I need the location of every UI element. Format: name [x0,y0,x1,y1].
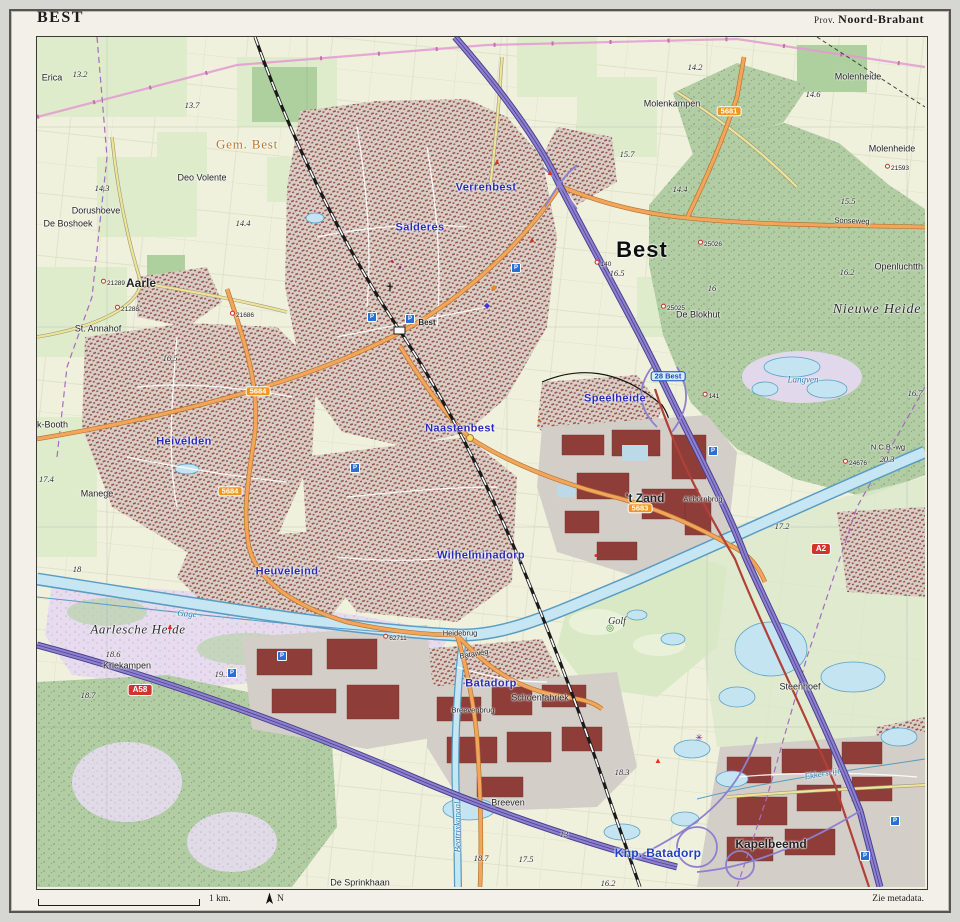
map-label-sonseweg: Sonseweg [834,217,869,226]
map-label-best: Best [616,239,668,261]
map-label-14-6: 14.6 [806,90,821,99]
map-label-21686: 21686 [230,311,254,320]
map-footer: 1 km. N Zie metadata. [37,890,924,912]
parking-icon: P [708,446,718,456]
map-label-18-3: 18.3 [615,768,630,777]
province-label: Prov. Noord-Brabant [814,12,924,27]
monument-icon: ◆ [491,284,497,292]
map-label-14-4: 14.4 [673,185,688,194]
map-label-langven: Langven [788,376,819,385]
map-label-salderes: Salderes [395,223,444,234]
hospital-icon: ● [594,553,598,560]
map-label-kapelbeemd: Kapelbeemd [735,838,806,850]
map-label-16-5: 16.5 [610,269,625,278]
poi-icon: ◆ [484,302,490,310]
map-label-18-6: 18.6 [106,650,121,659]
map-label-gage: Gage [177,609,197,619]
province-name: Noord-Brabant [838,12,924,26]
map-label-16-5: 16.5 [163,354,178,363]
map-label-25026: 25026 [698,240,722,249]
parking-icon: P [860,851,870,861]
map-label-21289: 21289 [101,279,125,288]
golf-icon: ◎ [606,624,614,633]
map-label-manege: Manege [81,490,114,499]
map-label-speelheide: Speelheide [584,394,646,405]
parking-icon: P [890,816,900,826]
sheet-title: BEST [37,9,84,27]
map-label-18: 18 [73,565,82,574]
map-label-16-2: 16.2 [840,268,855,277]
campsite-icon: ▲ [493,158,501,166]
map-label-140: 140 [595,260,612,269]
church-icon: ✝ [385,284,394,295]
map-label-25025: 25025 [661,304,685,313]
map-label-naastenbest: Naastenbest [425,424,495,435]
metadata-note: Zie metadata. [872,894,924,904]
map-label-17-2: 17.2 [775,522,790,531]
map-label-nieuwe-heide: Nieuwe Heide [833,303,922,317]
map-label-17-5: 17.5 [519,855,534,864]
map-label-beatrixkanaal: Beatrixkanaal [454,802,463,853]
map-label-k-booth: k-Booth [37,421,68,430]
map-artwork [37,37,925,887]
map-label-best: Best [418,319,435,327]
map-label-21288: 21288 [115,305,139,314]
map-label-openluchtth: Openluchtth [874,263,923,272]
map-label-14-4: 14.4 [236,219,251,228]
map-label-17-4: 17.4 [39,475,54,484]
north-arrow-icon [265,892,274,905]
map-label-n-c-b-wg: N.C.B.-wg [871,443,905,451]
map-label-breeven: Breeven [491,799,525,808]
map-label-13-2: 13.2 [73,70,88,79]
map-frame: BestAarle't ZandKapelbeemdGem. BestVerre… [36,36,928,890]
map-label-verrenbest: Verrenbest [456,183,517,194]
map-label-28-best: 28 Best [651,371,686,381]
map-label-5684: 5684 [247,387,270,395]
map-label-wilhelminadorp: Wilhelminadorp [437,551,525,562]
map-label-24676: 24676 [843,459,867,468]
map-label-16: 16 [708,284,717,293]
map-label-kriekampen: Kriekampen [103,662,151,671]
north-label: N [277,894,284,904]
map-label-a58: A58 [129,685,152,695]
map-label-erica: Erica [42,74,63,83]
map-label-21593: 21593 [885,164,909,173]
parking-icon: P [227,668,237,678]
map-label-20-3: 20.3 [880,455,895,464]
campsite-icon: ▲ [528,236,536,244]
map-label-st-annahof: St. Annahof [75,325,122,334]
map-label-18-7: 18.7 [81,691,96,700]
campsite-icon: ▲ [546,169,554,177]
map-label-13-7: 13.7 [185,101,200,110]
north-indicator: N [265,892,284,905]
map-label-batadorp: Batadorp [465,679,516,690]
map-label-18-7: 18.7 [474,854,489,863]
map-label-heidebrug: Heidebrug [443,629,478,637]
campsite-icon: ▲ [166,623,174,631]
map-label-13: 13 [560,830,569,839]
museum-icon: ● [390,259,394,265]
province-prefix: Prov. [814,15,835,25]
map-sheet-page: BEST Prov. Noord-Brabant [0,0,960,922]
map-label-de-boshoek: De Boshoek [43,220,92,229]
map-label-breevenbrug: Breevenbrug [452,706,495,714]
map-label-heuveleind: Heuveleind [256,567,319,578]
scale-bar [38,898,200,906]
map-label-a2: A2 [812,544,830,554]
parking-icon: P [405,314,415,324]
map-label-schoenfabriek: Schoenfabriek [511,694,569,703]
map-label-16-2: 16.2 [601,879,616,887]
map-label-dorushoeve: Dorushoeve [72,207,121,216]
map-label-airbornbrug: Airbornbrug [683,495,722,503]
map-label-t-zand: 't Zand [626,492,665,504]
windmill-icon: ✳ [695,734,703,743]
map-label-aarle: Aarle [126,277,156,289]
map-label-14-2: 14.2 [688,63,703,72]
map-label-62711: 62711 [383,634,407,643]
map-label-15-7: 15.7 [620,150,635,159]
parking-icon: P [350,463,360,473]
map-label-molenkampen: Molenkampen [644,100,701,109]
map-label-heivelden: Heivelden [156,437,212,448]
station-best-marker [394,327,405,334]
map-label-steenhoef: Steenhoef [779,683,820,692]
map-label-16-7: 16.7 [908,389,923,398]
parking-icon: P [367,312,377,322]
map-label-knp-batadorp: Knp. Batadorp [615,847,702,859]
map-label-5681: 5681 [718,107,741,115]
map-label-5684: 5684 [219,487,242,495]
map-label-141: 141 [703,392,720,401]
map-label-gem-best: Gem. Best [216,138,278,151]
map-label-molenheide: Molenheide [835,73,882,82]
map-label-5683: 5683 [629,504,652,512]
poi-icon: ● [398,265,402,271]
parking-icon: P [277,651,287,661]
campsite-icon: ▲ [654,757,662,765]
map-label-14-3: 14.3 [95,184,110,193]
map-label-15-5: 15.5 [841,197,856,206]
scale-label: 1 km. [209,894,231,904]
map-label-molenheide: Molenheide [869,145,916,154]
map-label-de-sprinkhaan: De Sprinkhaan [330,879,390,888]
map-canvas: BestAarle't ZandKapelbeemdGem. BestVerre… [37,37,925,887]
parking-icon: P [511,263,521,273]
poi-icon: ● [537,418,541,424]
map-label-deo-volente: Deo Volente [177,174,226,183]
